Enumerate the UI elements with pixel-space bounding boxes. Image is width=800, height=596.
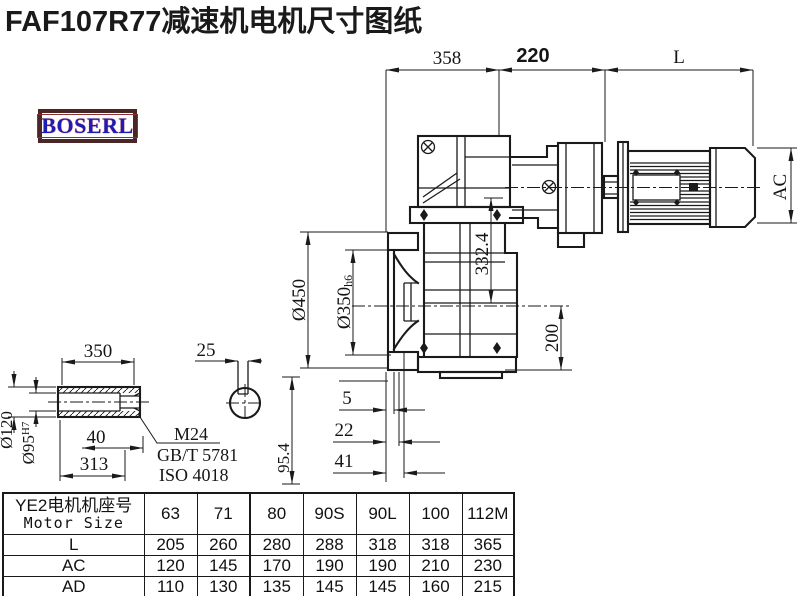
- cell-AC-112m: 230: [462, 556, 514, 577]
- dim-220: 220: [499, 45, 605, 142]
- dim-label-95h7: Ø95H7: [19, 421, 38, 464]
- boserl-logo: BOSERL: [38, 109, 137, 143]
- dim-350-shaft: 350: [62, 341, 134, 385]
- boserl-logo-text: BOSERL: [41, 113, 133, 138]
- dim-350h6: Ø350h6: [334, 250, 391, 355]
- table-row-AC: AC 120 145 170 190 190 210 230: [3, 556, 514, 577]
- dim-label-200: 200: [542, 324, 563, 353]
- header-label-cn: YE2电机机座号: [4, 496, 144, 516]
- dim-95-main: Ø95: [19, 435, 38, 464]
- size-col-90s: 90S: [303, 493, 356, 535]
- output-flange-bell: [388, 233, 418, 370]
- cell-L-90s: 288: [303, 535, 356, 556]
- dim-label-25: 25: [197, 340, 216, 361]
- note-iso-4018: ISO 4018: [159, 465, 229, 485]
- dim-95h7: Ø95H7: [19, 377, 56, 464]
- size-col-63: 63: [144, 493, 197, 535]
- cell-AD-71: 130: [197, 577, 250, 596]
- page-title: FAF107R77减速机电机尺寸图纸: [5, 0, 422, 40]
- dim-AC: AC: [757, 148, 797, 223]
- dim-350-main: Ø350: [334, 287, 355, 329]
- dim-label-22: 22: [335, 420, 354, 441]
- cell-L-112m: 365: [462, 535, 514, 556]
- cell-AD-90l: 145: [356, 577, 409, 596]
- size-col-80: 80: [250, 493, 303, 535]
- cell-L-63: 205: [144, 535, 197, 556]
- table-row-L: L 205 260 280 288 318 318 365: [3, 535, 514, 556]
- dim-label-95-4: 95.4: [274, 443, 293, 473]
- dim-L: L: [605, 47, 753, 146]
- cell-L-100: 318: [409, 535, 462, 556]
- header-label-en: Motor Size: [4, 515, 144, 532]
- note-gbt-5781: GB/T 5781: [157, 445, 238, 465]
- dim-40: 40: [82, 427, 143, 453]
- table-header-row: YE2电机机座号 Motor Size 63 71 80 90S 90L 100…: [3, 493, 514, 535]
- table-row-AD: AD 110 130 135 145 145 160 215: [3, 577, 514, 596]
- dim-label-450: Ø450: [289, 279, 310, 321]
- cell-L-80: 280: [250, 535, 303, 556]
- dim-95-4: 95.4: [274, 377, 300, 484]
- thread-note: M24 GB/T 5781 ISO 4018: [138, 414, 238, 485]
- dim-95-tolerance: H7: [20, 421, 32, 435]
- table-header-motor-size: YE2电机机座号 Motor Size: [3, 493, 144, 535]
- cell-AD-112m: 215: [462, 577, 514, 596]
- cell-AD-63: 110: [144, 577, 197, 596]
- cell-AC-100: 210: [409, 556, 462, 577]
- size-col-112m: 112M: [462, 493, 514, 535]
- cell-AC-90l: 190: [356, 556, 409, 577]
- note-m24: M24: [174, 424, 208, 444]
- dim-label-350s: 350: [84, 341, 113, 362]
- gearbox-housing: [410, 136, 523, 378]
- cell-AD-90s: 145: [303, 577, 356, 596]
- dim-label-L: L: [673, 47, 685, 68]
- size-col-90l: 90L: [356, 493, 409, 535]
- centerlines: [48, 188, 762, 423]
- size-col-71: 71: [197, 493, 250, 535]
- row-label-AD: AD: [3, 577, 144, 596]
- size-col-100: 100: [409, 493, 462, 535]
- dim-358: 358: [386, 48, 499, 232]
- motor-size-table: YE2电机机座号 Motor Size 63 71 80 90S 90L 100…: [2, 492, 515, 596]
- dim-label-40: 40: [87, 427, 106, 448]
- row-label-AC: AC: [3, 556, 144, 577]
- motor-adapter: [510, 143, 618, 247]
- row-label-L: L: [3, 535, 144, 556]
- dim-label-332-4: 332.4: [472, 232, 493, 275]
- dim-label-120: Ø120: [0, 411, 16, 449]
- dim-label-350h6: Ø350h6: [334, 275, 355, 329]
- cell-AC-71: 145: [197, 556, 250, 577]
- boserl-logo-frame: BOSERL: [37, 114, 137, 138]
- cell-AC-80: 170: [250, 556, 303, 577]
- drawing-sheet: FAF107R77减速机电机尺寸图纸 BOSERL: [0, 0, 800, 596]
- dim-350-tolerance: h6: [341, 275, 355, 287]
- cell-L-90l: 318: [356, 535, 409, 556]
- cell-AC-90s: 190: [303, 556, 356, 577]
- cell-AD-80: 135: [250, 577, 303, 596]
- dim-25: 25: [195, 340, 262, 361]
- dim-label-220: 220: [516, 45, 549, 67]
- dim-label-313: 313: [80, 454, 109, 475]
- dim-label-358: 358: [433, 48, 462, 69]
- cell-AD-100: 160: [409, 577, 462, 596]
- cell-L-71: 260: [197, 535, 250, 556]
- dim-label-5: 5: [342, 388, 352, 409]
- dim-label-AC: AC: [770, 174, 791, 200]
- dim-label-41: 41: [335, 451, 354, 472]
- cell-AC-63: 120: [144, 556, 197, 577]
